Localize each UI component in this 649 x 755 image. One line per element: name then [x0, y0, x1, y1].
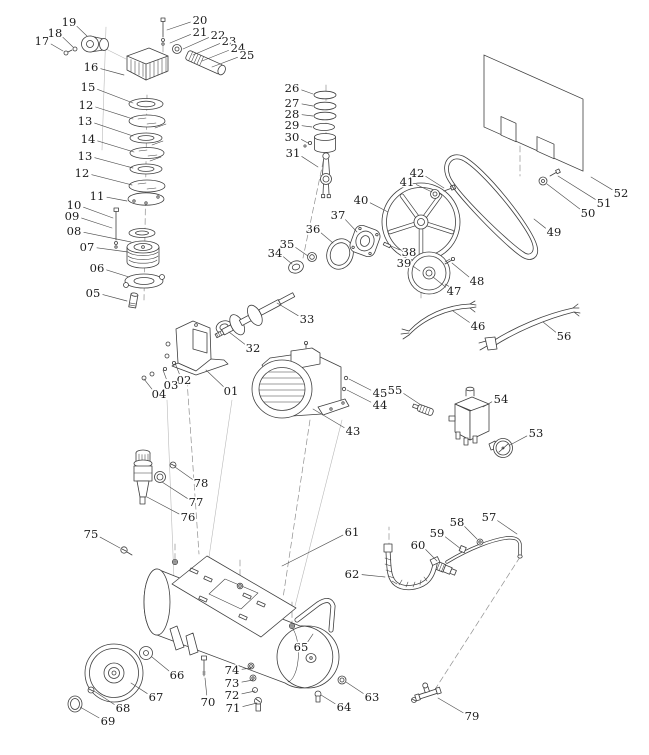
part-label-71-72: 71	[226, 701, 241, 715]
leader-line-28-29	[302, 115, 313, 116]
part-label-68-69: 68	[116, 701, 131, 715]
leader-line-79-80	[438, 698, 463, 713]
part-label-18-19: 18	[48, 26, 63, 40]
part-label-31-32: 31	[286, 146, 301, 160]
leader-line-73-74	[242, 680, 253, 682]
leader-line-52-53	[591, 177, 612, 190]
leader-line-12-15	[92, 175, 132, 185]
part-label-70-71: 70	[201, 695, 216, 709]
leader-line-23-24	[193, 44, 220, 55]
leader-line-35-36	[296, 247, 308, 256]
leader-line-37-38	[345, 220, 357, 232]
leader-line-19-20	[77, 26, 87, 36]
part-label-77-78: 77	[189, 495, 204, 509]
cylinder-drawing	[124, 229, 165, 289]
leader-line-20-21	[167, 22, 190, 30]
leader-line-01-0	[206, 370, 223, 386]
part-label-47-48: 47	[447, 284, 462, 298]
cylinder-bolts-drawing	[114, 208, 119, 248]
leader-line-66-67	[152, 657, 169, 671]
part-label-05-4: 05	[86, 286, 101, 300]
stud-drawing	[129, 292, 138, 308]
leader-line-18-19	[63, 37, 73, 47]
part-label-30-31: 30	[285, 130, 300, 144]
leader-line-53-54	[510, 436, 527, 445]
part-label-56-57: 56	[557, 329, 572, 343]
part-label-55-56: 55	[388, 383, 403, 397]
part-label-72-73: 72	[225, 688, 240, 702]
leader-line-75-76	[100, 537, 120, 548]
part-label-46-47: 46	[471, 319, 486, 333]
leader-line-33-34	[277, 303, 298, 316]
crankcase-drawing	[142, 321, 228, 380]
leader-line-46-47	[453, 311, 469, 322]
leader-line-70-71	[205, 678, 207, 695]
leader-line-50-51	[547, 184, 580, 209]
leader-line-36-37	[321, 233, 333, 243]
part-label-78-79: 78	[194, 476, 209, 490]
part-label-52-53: 52	[614, 186, 629, 200]
part-label-73-74: 73	[225, 676, 240, 690]
air-filter-drawing	[64, 36, 109, 55]
leader-line-13-14	[95, 158, 133, 168]
part-label-64-65: 64	[337, 700, 352, 714]
leader-line-14-13	[98, 141, 134, 152]
part-label-26-27: 26	[285, 81, 300, 95]
guard-fasteners-drawing	[539, 169, 560, 185]
part-label-74-75: 74	[225, 663, 240, 677]
leader-line-59-60	[445, 537, 461, 549]
leader-line-48-49	[452, 263, 469, 277]
part-label-16-17: 16	[84, 60, 99, 74]
leader-line-63-64	[346, 682, 363, 694]
part-label-37-38: 37	[331, 208, 346, 222]
leader-line-12-11	[96, 107, 133, 119]
leader-line-64-65	[321, 695, 335, 704]
leader-line-56-57	[543, 322, 556, 332]
part-label-63-64: 63	[365, 690, 380, 704]
belt-guard-grid-drawing	[484, 55, 583, 172]
pipe-fittings-drawing	[435, 539, 483, 577]
head-bolt-drawing	[161, 18, 165, 45]
diagram-canvas: 0102030405060708091011121314131215161718…	[0, 0, 649, 755]
part-label-58-59: 58	[450, 515, 465, 529]
part-label-40-41: 40	[354, 193, 369, 207]
leader-line-07-6	[97, 248, 128, 252]
pressure-switch-drawing	[449, 387, 489, 445]
leader-line-13-12	[95, 123, 133, 136]
part-label-50-51: 50	[581, 206, 596, 220]
motor-drawing	[252, 341, 349, 418]
part-label-21-22: 21	[193, 25, 208, 39]
leader-line-55-56	[404, 393, 421, 405]
muffler-drawing	[173, 45, 227, 77]
leader-line-71-72	[243, 703, 257, 707]
part-label-33-34: 33	[300, 312, 315, 326]
leader-line-11-10	[107, 197, 127, 201]
part-label-07-6: 07	[80, 240, 95, 254]
leader-line-61-62	[282, 535, 343, 566]
part-label-10-9: 10	[67, 198, 82, 212]
cylinder-head-drawing	[127, 48, 168, 80]
leader-line-78-79	[175, 467, 192, 479]
part-label-08-7: 08	[67, 224, 82, 238]
leader-line-30-31	[301, 139, 308, 143]
leader-line-24-25	[202, 50, 229, 61]
leader-line-09-8	[82, 218, 112, 228]
part-label-57-58: 57	[482, 510, 497, 524]
exploded-parts-diagram: 0102030405060708091011121314131215161718…	[0, 0, 649, 755]
part-label-25-26: 25	[240, 48, 255, 62]
part-label-35-36: 35	[280, 237, 295, 251]
part-label-42-43: 42	[410, 166, 425, 180]
leader-line-57-58	[498, 521, 517, 534]
leader-line-51-52	[558, 176, 595, 199]
part-label-54-55: 54	[494, 392, 509, 406]
leader-line-27-28	[302, 104, 313, 106]
part-label-12-11: 12	[79, 98, 94, 112]
part-label-49-50: 49	[547, 225, 562, 239]
leader-line-15-16	[97, 89, 133, 103]
screw-75-drawing	[121, 547, 132, 555]
part-label-12-15: 12	[75, 166, 90, 180]
part-label-75-76: 75	[84, 527, 99, 541]
part-label-32-33: 32	[246, 341, 261, 355]
leader-line-22-23	[183, 38, 209, 49]
leader-line-58-59	[465, 527, 477, 539]
part-label-36-37: 36	[306, 222, 321, 236]
part-label-14-13: 14	[81, 132, 96, 146]
part-label-43-44: 43	[346, 424, 361, 438]
power-cord-drawing	[479, 304, 580, 350]
leader-line-06-5	[107, 270, 129, 277]
part-label-53-54: 53	[529, 426, 544, 440]
part-label-02-1: 02	[177, 373, 192, 387]
part-label-45-46: 45	[373, 386, 388, 400]
motor-cord-drawing	[401, 301, 476, 339]
leader-line-21-22	[170, 34, 191, 43]
part-label-51-52: 51	[597, 196, 612, 210]
part-label-69-70: 69	[101, 714, 116, 728]
connector-55-drawing	[412, 402, 434, 416]
leader-line-77-78	[162, 482, 187, 498]
leader-line-76-77	[147, 497, 179, 514]
leader-line-17-18	[51, 44, 63, 51]
leader-line-34-35	[283, 257, 292, 264]
drain-pipe-drawing	[447, 538, 522, 562]
part-label-06-5: 06	[90, 261, 105, 275]
leader-line-05-4	[103, 295, 127, 301]
part-label-48-49: 48	[470, 274, 485, 288]
part-label-60-61: 60	[411, 538, 426, 552]
part-label-65-66: 65	[294, 640, 309, 654]
part-label-67-68: 67	[149, 690, 164, 704]
part-label-66-67: 66	[170, 668, 185, 682]
part-label-13-12: 13	[78, 114, 93, 128]
leader-line-49-50	[534, 219, 546, 228]
part-label-13-14: 13	[78, 149, 93, 163]
leader-line-72-73	[242, 691, 255, 694]
part-label-76-77: 76	[181, 510, 196, 524]
v-belt-drawing	[445, 155, 538, 260]
check-valve-drawing	[412, 679, 442, 702]
part-label-15-16: 15	[81, 80, 96, 94]
part-label-79-80: 79	[465, 709, 480, 723]
leader-line-69-70	[80, 707, 99, 718]
leader-line-29-30	[302, 126, 312, 127]
leader-line-31-32	[302, 156, 318, 167]
gauge-drawing	[489, 439, 513, 458]
part-label-04-3: 04	[152, 387, 167, 401]
part-label-59-60: 59	[430, 526, 445, 540]
part-label-11-10: 11	[90, 189, 105, 203]
leader-line-62-63	[362, 575, 385, 577]
crankshaft-drawing	[211, 285, 299, 346]
leader-line-44-45	[347, 390, 371, 402]
leader-line-10-9	[83, 207, 113, 218]
leader-line-45-46	[349, 379, 371, 390]
part-label-61-62: 61	[345, 525, 360, 539]
part-label-44-45: 44	[373, 398, 388, 412]
leader-line-26-27	[302, 90, 313, 94]
part-label-19-20: 19	[62, 15, 77, 29]
part-label-39-40: 39	[397, 256, 412, 270]
piston-assembly-drawing	[304, 91, 336, 198]
flywheel-drawing	[382, 183, 460, 261]
part-label-62-63: 62	[345, 567, 360, 581]
part-label-01-0: 01	[224, 384, 239, 398]
